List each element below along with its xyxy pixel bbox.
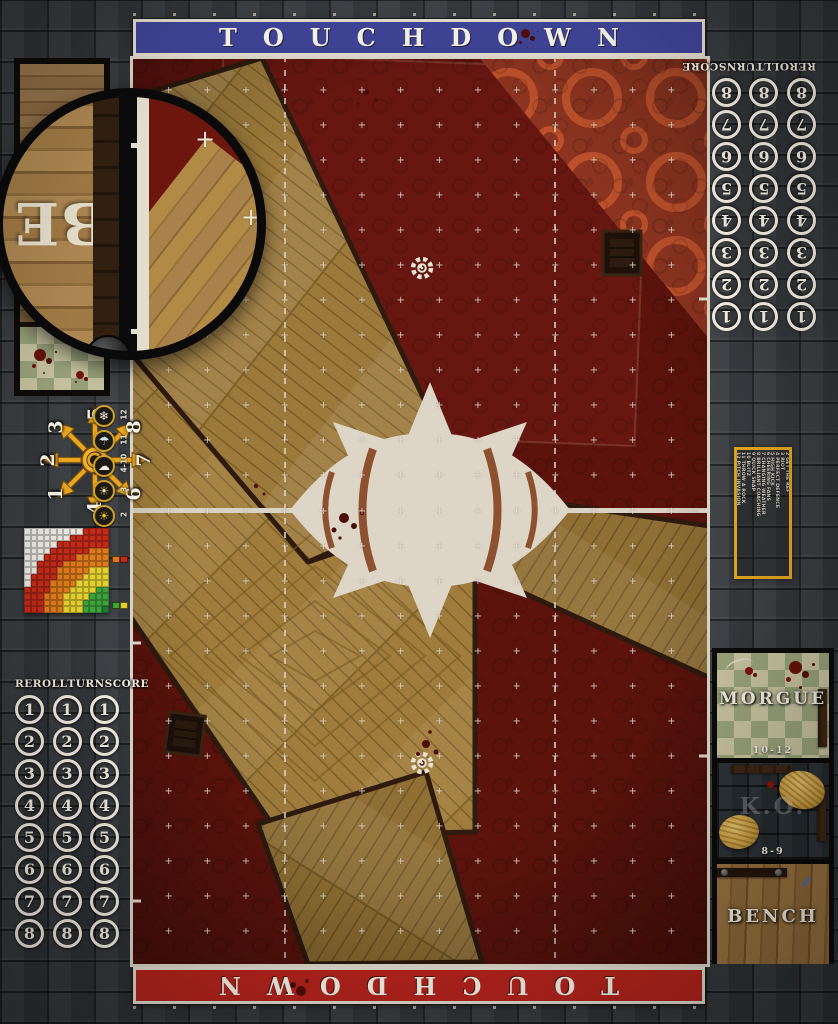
magnified-edge-line xyxy=(137,97,149,351)
turn-track-cell: 7 xyxy=(53,887,82,916)
kickoff-entry: 12 PITCH INVASION xyxy=(735,452,740,574)
turn-track-cell: 8 xyxy=(90,919,119,948)
banner-inner: TOUCHDOWN xyxy=(136,971,702,1000)
ko-range: 8-9 xyxy=(717,846,829,857)
track-row: 555 xyxy=(15,823,119,852)
track-row: 555 xyxy=(712,174,816,203)
dugout-morgue: MORGUE 10-12 xyxy=(717,653,829,763)
blood-splatter xyxy=(76,371,84,379)
turn-track-cell: 1 xyxy=(15,695,44,724)
track-row: 777 xyxy=(712,110,816,139)
blood-splatter xyxy=(767,781,774,788)
blood-splatter xyxy=(789,661,802,674)
turn-track-cell: 8 xyxy=(787,78,816,107)
grid-cross: + xyxy=(241,203,257,231)
turn-track-cell: 1 xyxy=(53,695,82,724)
turn-track-cell: 5 xyxy=(53,823,82,852)
range-legend-swatch xyxy=(120,556,128,563)
weather-row: ☀3 xyxy=(93,479,137,504)
magnified-frame-gap xyxy=(119,97,137,351)
blood-splatter xyxy=(521,29,530,38)
pass-range-ruler xyxy=(24,528,109,613)
track-row: 777 xyxy=(15,887,119,916)
sun-icon: ☀ xyxy=(93,505,115,527)
morgue-range: 10-12 xyxy=(717,745,829,756)
turn-track-cell: 3 xyxy=(90,759,119,788)
track-header: REROLL TURN SCORE xyxy=(15,678,119,690)
turn-track-cell: 3 xyxy=(712,238,741,267)
bolt-icon xyxy=(775,869,782,876)
weather-row: ❄12 xyxy=(93,404,137,429)
turn-track-cell: 2 xyxy=(90,727,119,756)
range-legend-swatch xyxy=(112,556,120,563)
range-row xyxy=(24,606,109,613)
turn-track-cell: 4 xyxy=(750,206,779,235)
game-mat-board: TOUCHDOWN TOUCHDOWN xyxy=(0,0,838,1024)
turn-track-cell: 1 xyxy=(750,302,779,331)
magnified-wood-floor xyxy=(149,137,257,351)
rain-icon: ☂ xyxy=(93,430,115,452)
weather-row: ☂11 xyxy=(93,429,137,454)
track-row: 444 xyxy=(15,791,119,820)
track-row: 333 xyxy=(15,759,119,788)
turn-track-cell: 3 xyxy=(787,238,816,267)
track-row: 333 xyxy=(712,238,816,267)
cloud-sun-icon: ☁ xyxy=(93,455,115,477)
turn-track-cell: 6 xyxy=(15,855,44,884)
turn-track-left: REROLL TURN SCORE 1112223334445556667778… xyxy=(15,678,119,951)
ko-label: K.O. xyxy=(717,793,829,820)
zoom-detail-circle: BE + + + xyxy=(0,88,266,360)
turn-track-cell: 7 xyxy=(90,887,119,916)
scatter-number-1: 1 xyxy=(45,487,67,500)
scatter-number-3: 3 xyxy=(45,420,67,433)
banner-inner: TOUCHDOWN xyxy=(136,23,702,52)
track-header-score: SCORE xyxy=(105,678,149,690)
bolt-icon xyxy=(721,869,728,876)
scatter-number-2: 2 xyxy=(37,453,59,466)
turn-track-right: 111222333444555666777888 REROLL TURN SCO… xyxy=(712,60,816,331)
turn-track-cell: 1 xyxy=(712,302,741,331)
track-row: 666 xyxy=(712,142,816,171)
track-header-reroll: REROLL xyxy=(15,678,67,690)
weather-range-label: 2 xyxy=(120,507,129,523)
turn-track-cell: 7 xyxy=(712,110,741,139)
turn-track-cell: 2 xyxy=(53,727,82,756)
turn-track-cell: 5 xyxy=(750,174,779,203)
kickoff-table: 2 GET THE REF3 RIOT4 PERFECT DEFENCE5 HI… xyxy=(734,447,792,579)
magnified-pitch-corner: + + + xyxy=(149,97,257,351)
track-header: REROLL TURN SCORE xyxy=(712,60,816,72)
grid-cross: + xyxy=(195,125,215,153)
turn-track-cell: 4 xyxy=(15,791,44,820)
turn-track-cell: 7 xyxy=(750,110,779,139)
turn-track-cell: 6 xyxy=(750,142,779,171)
bench-label: BENCH xyxy=(717,906,829,927)
range-cell xyxy=(102,606,109,613)
range-legend-pair xyxy=(112,602,128,609)
turn-track-cell: 4 xyxy=(712,206,741,235)
track-row: 111 xyxy=(712,302,816,331)
banner-nails-bottom2 xyxy=(133,1006,705,1009)
right-dugout: MORGUE 10-12 K.O. 8-9 BENCH xyxy=(712,648,834,964)
turn-track-cell: 3 xyxy=(53,759,82,788)
magnified-dugout-frame xyxy=(93,97,119,351)
turn-track-cell: 5 xyxy=(712,174,741,203)
track-circles: 111222333444555666777888 xyxy=(15,695,119,948)
weather-table: ❄12☂11☁4-10☀3☀2 xyxy=(93,404,137,529)
hazy-sun-icon: ☀ xyxy=(93,480,115,502)
track-circles: 111222333444555666777888 xyxy=(712,78,816,331)
turn-track-cell: 2 xyxy=(15,727,44,756)
range-legend-pair xyxy=(112,556,128,563)
turn-track-cell: 4 xyxy=(787,206,816,235)
turn-track-cell: 5 xyxy=(90,823,119,852)
track-row: 111 xyxy=(15,695,119,724)
track-row: 888 xyxy=(712,78,816,107)
snow-icon: ❄ xyxy=(93,405,115,427)
dugout-bench: BENCH xyxy=(717,864,829,964)
track-header-reroll: REROLL xyxy=(764,60,816,72)
track-row: 666 xyxy=(15,855,119,884)
turn-track-cell: 6 xyxy=(53,855,82,884)
weather-row: ☁4-10 xyxy=(93,454,137,479)
weather-range-label: 11 xyxy=(120,432,129,448)
touchdown-label-top: TOUCHDOWN xyxy=(219,23,645,52)
turn-track-cell: 1 xyxy=(90,695,119,724)
magnified-tick xyxy=(131,329,145,334)
turn-track-cell: 8 xyxy=(53,919,82,948)
turn-track-cell: 2 xyxy=(787,270,816,299)
track-header-score: SCORE xyxy=(682,60,726,72)
turn-track-cell: 7 xyxy=(787,110,816,139)
kickoff-table-lines: 2 GET THE REF3 RIOT4 PERFECT DEFENCE5 HI… xyxy=(738,452,788,574)
weather-row: ☀2 xyxy=(93,504,137,529)
turn-track-cell: 7 xyxy=(15,887,44,916)
turn-track-cell: 8 xyxy=(750,78,779,107)
track-row: 222 xyxy=(712,270,816,299)
track-row: 888 xyxy=(15,919,119,948)
turn-track-cell: 2 xyxy=(712,270,741,299)
blue-feather xyxy=(802,877,811,887)
track-row: 222 xyxy=(15,727,119,756)
range-legend-swatch xyxy=(120,602,128,609)
morgue-label: MORGUE xyxy=(717,689,829,709)
turn-track-cell: 3 xyxy=(750,238,779,267)
dugout-ko: K.O. 8-9 xyxy=(717,763,829,864)
banner-nails-top xyxy=(133,13,705,16)
turn-track-cell: 5 xyxy=(787,174,816,203)
wood-beam xyxy=(731,765,793,773)
track-header-turn: TURN xyxy=(67,678,104,690)
track-header-turn: TURN xyxy=(726,60,763,72)
turn-track-cell: 5 xyxy=(15,823,44,852)
turn-track-cell: 4 xyxy=(90,791,119,820)
turn-track-cell: 8 xyxy=(712,78,741,107)
turn-track-cell: 8 xyxy=(15,919,44,948)
magnified-tick xyxy=(131,143,145,148)
turn-track-cell: 2 xyxy=(750,270,779,299)
weather-range-label: 4-10 xyxy=(120,457,129,473)
turn-track-cell: 4 xyxy=(53,791,82,820)
turn-track-cell: 6 xyxy=(787,142,816,171)
magnified-bench-wood: BE xyxy=(3,97,93,351)
weather-range-label: 3 xyxy=(120,482,129,498)
range-legend-swatch xyxy=(112,602,120,609)
kickoff-entry: 4 PERFECT DEFENCE xyxy=(773,452,778,574)
kickoff-entry: 11 THROW A ROCK xyxy=(739,452,744,574)
touchdown-banner-top: TOUCHDOWN xyxy=(133,19,705,56)
touchdown-label-bottom: TOUCHDOWN xyxy=(193,971,619,1000)
touchdown-banner-bottom: TOUCHDOWN xyxy=(133,967,705,1004)
blood-splatter xyxy=(296,986,306,996)
blood-splatter xyxy=(745,667,753,675)
turn-track-cell: 1 xyxy=(787,302,816,331)
turn-track-cell: 6 xyxy=(90,855,119,884)
turn-track-cell: 6 xyxy=(712,142,741,171)
turn-track-cell: 3 xyxy=(15,759,44,788)
grid-cross: + xyxy=(197,325,217,351)
weather-range-label: 12 xyxy=(120,407,129,423)
kickoff-entry: 2 GET THE REF xyxy=(783,452,788,574)
track-row: 444 xyxy=(712,206,816,235)
